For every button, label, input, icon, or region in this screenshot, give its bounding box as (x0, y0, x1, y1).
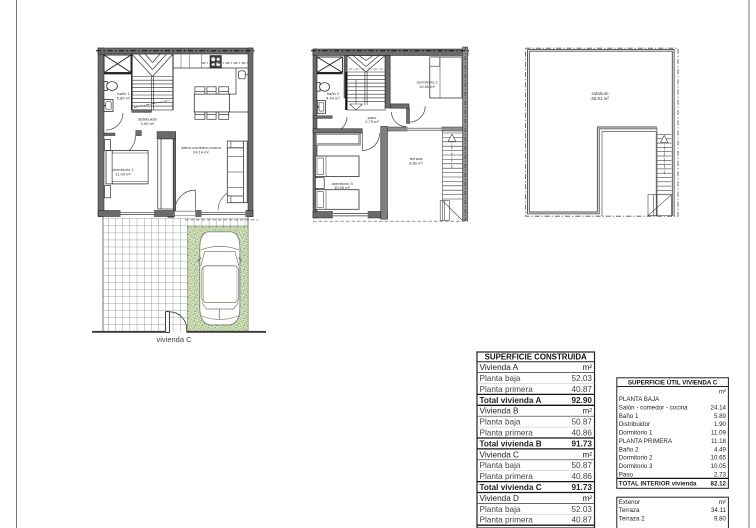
svg-text:Terraza: Terraza (619, 507, 640, 514)
svg-text:PLANTA PRIMERA: PLANTA PRIMERA (619, 438, 673, 445)
svg-text:Total vivienda A: Total vivienda A (480, 396, 542, 405)
svg-text:Dormitorio 1: Dormitorio 1 (619, 430, 653, 437)
svg-text:40.86: 40.86 (572, 429, 593, 438)
svg-text:m²: m² (719, 388, 726, 395)
svg-text:Vivienda A: Vivienda A (480, 363, 519, 372)
svg-text:Total vivienda C: Total vivienda C (480, 483, 542, 492)
svg-text:PLANTA BAJA: PLANTA BAJA (619, 396, 660, 403)
svg-text:Paso: Paso (619, 471, 634, 478)
svg-text:34.11: 34.11 (711, 507, 727, 514)
svg-text:8.80 m²: 8.80 m² (409, 160, 423, 165)
svg-text:Planta primera: Planta primera (480, 516, 534, 525)
svg-text:52.03: 52.03 (572, 505, 593, 514)
svg-text:91.73: 91.73 (572, 439, 593, 448)
svg-text:Terraza 2: Terraza 2 (619, 516, 645, 523)
svg-text:Salón - comedor - cocina: Salón - comedor - cocina (619, 405, 688, 412)
svg-text:m²: m² (719, 499, 726, 506)
svg-text:1.90 m²: 1.90 m² (141, 121, 155, 126)
svg-text:Dormitorio 3: Dormitorio 3 (619, 463, 653, 470)
svg-text:SUPERFICIE ÚTIL VIVIENDA C: SUPERFICIE ÚTIL VIVIENDA C (628, 379, 718, 386)
svg-text:92.90: 92.90 (572, 396, 593, 405)
svg-text:4.49: 4.49 (714, 446, 727, 453)
svg-text:m²: m² (582, 363, 592, 372)
svg-text:Planta primera: Planta primera (480, 429, 534, 438)
svg-text:10.05 m²: 10.05 m² (334, 185, 350, 190)
svg-text:Planta primera: Planta primera (480, 472, 534, 481)
svg-text:52.03: 52.03 (572, 374, 593, 383)
svg-text:24.14 m²: 24.14 m² (193, 150, 209, 155)
svg-text:11.09 m²: 11.09 m² (115, 171, 131, 176)
svg-text:Total vivienda B: Total vivienda B (480, 439, 542, 448)
svg-text:10.65: 10.65 (711, 455, 727, 462)
svg-text:Planta baja: Planta baja (480, 505, 521, 514)
svg-text:Distribuidor: Distribuidor (619, 421, 650, 428)
svg-text:Vivienda B: Vivienda B (480, 407, 520, 416)
svg-text:Planta baja: Planta baja (480, 418, 521, 427)
svg-text:11.09: 11.09 (711, 430, 727, 437)
svg-text:40.86: 40.86 (572, 472, 593, 481)
svg-text:m²: m² (582, 450, 592, 459)
svg-text:2.73 m²: 2.73 m² (365, 119, 379, 124)
svg-text:50.87: 50.87 (572, 461, 593, 470)
svg-text:Baño 1: Baño 1 (619, 413, 639, 420)
svg-text:SUPERFICIE CONSTRUIDA: SUPERFICIE CONSTRUIDA (485, 352, 587, 361)
svg-text:5.89: 5.89 (714, 413, 727, 420)
svg-text:vivienda C: vivienda C (156, 335, 192, 344)
svg-text:10.65 m²: 10.65 m² (419, 84, 435, 89)
svg-text:5.89 m²: 5.89 m² (117, 96, 131, 101)
svg-text:4.49 m²: 4.49 m² (326, 96, 340, 101)
svg-text:10.05: 10.05 (711, 463, 727, 470)
svg-text:Baño 2: Baño 2 (619, 446, 639, 453)
svg-text:9.80: 9.80 (714, 516, 727, 523)
svg-text:24.14: 24.14 (711, 405, 727, 412)
svg-text:Planta baja: Planta baja (480, 461, 521, 470)
svg-text:m²: m² (582, 494, 592, 503)
svg-text:Dormitorio 2: Dormitorio 2 (619, 455, 653, 462)
svg-text:Planta baja: Planta baja (480, 374, 521, 383)
svg-text:TOTAL INTERIOR vivienda: TOTAL INTERIOR vivienda (619, 481, 697, 488)
svg-text:Planta primera: Planta primera (480, 385, 534, 394)
svg-text:40.87: 40.87 (572, 516, 593, 525)
svg-text:m²: m² (582, 407, 592, 416)
svg-text:50.87: 50.87 (572, 418, 593, 427)
svg-text:Vivienda C: Vivienda C (480, 450, 520, 459)
svg-text:91.73: 91.73 (572, 483, 593, 492)
svg-text:11.18: 11.18 (711, 438, 727, 445)
svg-text:40.87: 40.87 (572, 385, 593, 394)
svg-text:Vivienda D: Vivienda D (480, 494, 520, 503)
svg-text:Exterior: Exterior (619, 499, 640, 506)
svg-text:2.73: 2.73 (714, 471, 727, 478)
svg-text:35.91 m²: 35.91 m² (591, 96, 609, 101)
svg-text:1.90: 1.90 (714, 421, 727, 428)
svg-text:82.12: 82.12 (711, 481, 727, 488)
